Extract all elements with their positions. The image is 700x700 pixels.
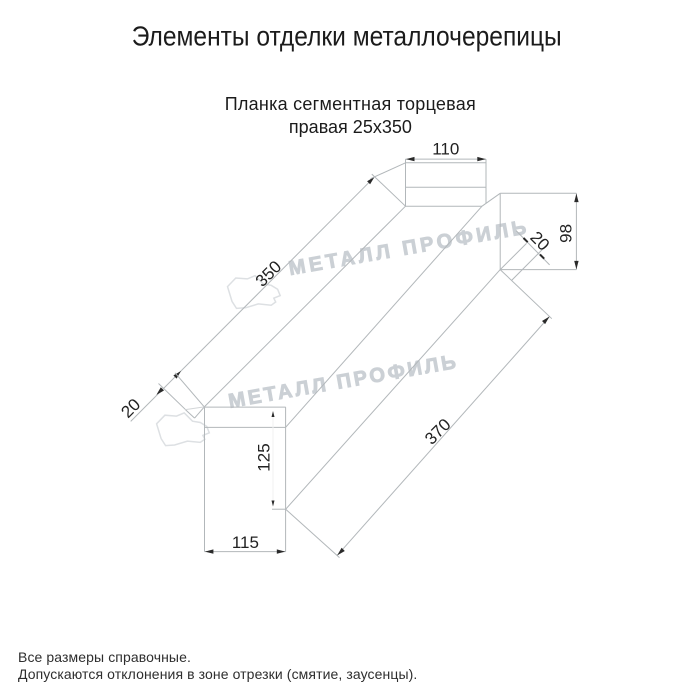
svg-text:20: 20 <box>117 395 144 422</box>
svg-text:Допускаются отклонения в зоне: Допускаются отклонения в зоне отрезки (с… <box>18 666 417 682</box>
svg-text:МЕТАЛЛ ПРОФИЛЬ: МЕТАЛЛ ПРОФИЛЬ <box>287 216 531 280</box>
svg-text:МЕТАЛЛ ПРОФИЛЬ: МЕТАЛЛ ПРОФИЛЬ <box>227 351 460 413</box>
svg-text:Все размеры справочные.: Все размеры справочные. <box>18 649 191 665</box>
svg-text:110: 110 <box>432 140 459 159</box>
svg-text:правая 25х350: правая 25х350 <box>289 117 412 137</box>
svg-text:98: 98 <box>556 224 575 243</box>
svg-text:115: 115 <box>232 533 259 552</box>
svg-text:350: 350 <box>252 257 285 290</box>
svg-text:125: 125 <box>255 443 274 471</box>
svg-text:Элементы отделки металлочерепи: Элементы отделки металлочерепицы <box>132 21 562 52</box>
svg-text:Планка сегментная торцевая: Планка сегментная торцевая <box>225 94 476 114</box>
svg-text:370: 370 <box>421 415 454 448</box>
